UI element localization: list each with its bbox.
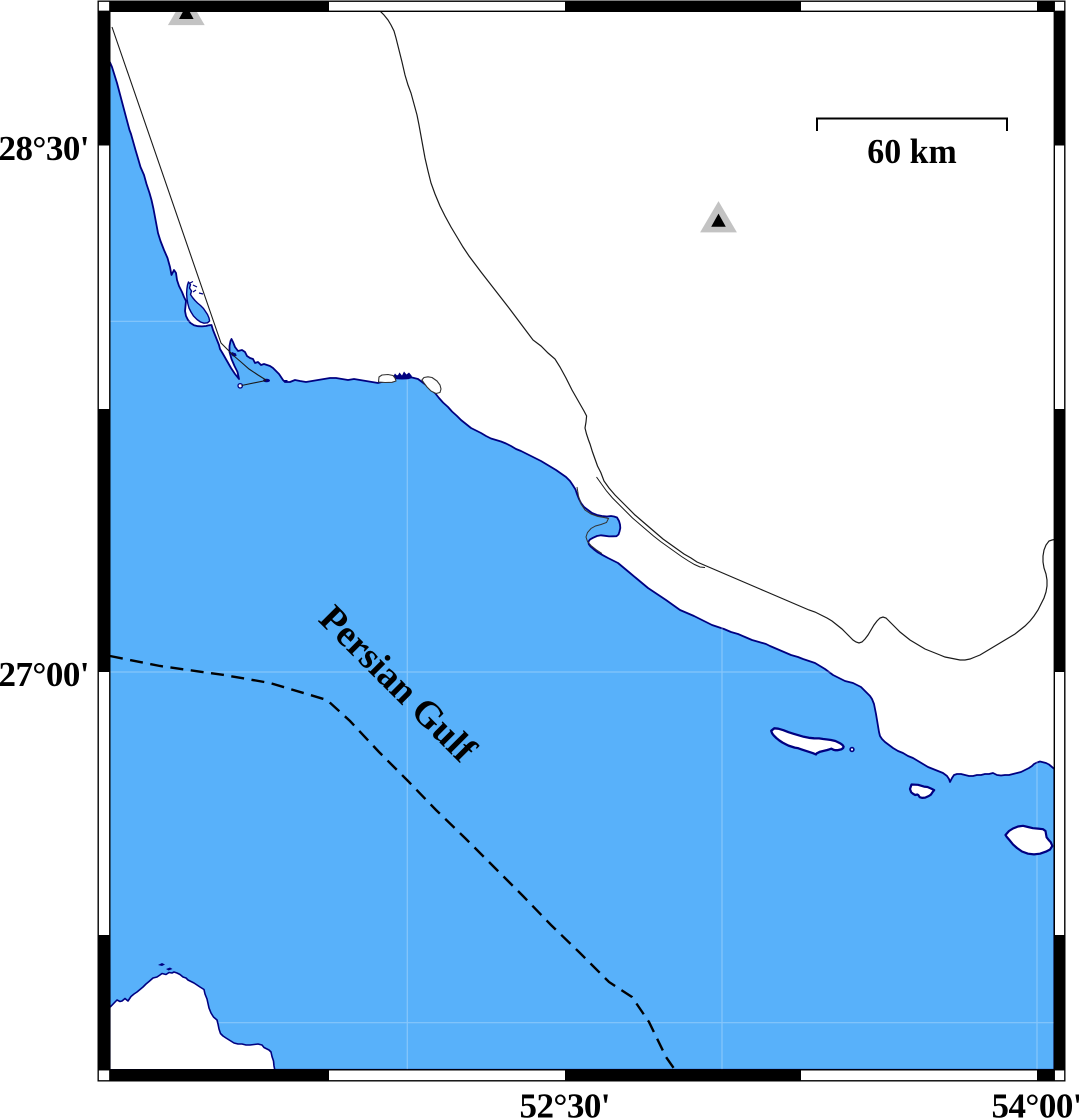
svg-text:28°30': 28°30' (0, 129, 90, 168)
svg-text:27°00': 27°00' (0, 655, 90, 694)
svg-text:54°00': 54°00' (992, 1087, 1079, 1118)
svg-text:60 km: 60 km (867, 132, 957, 171)
svg-text:52°30': 52°30' (520, 1087, 611, 1118)
